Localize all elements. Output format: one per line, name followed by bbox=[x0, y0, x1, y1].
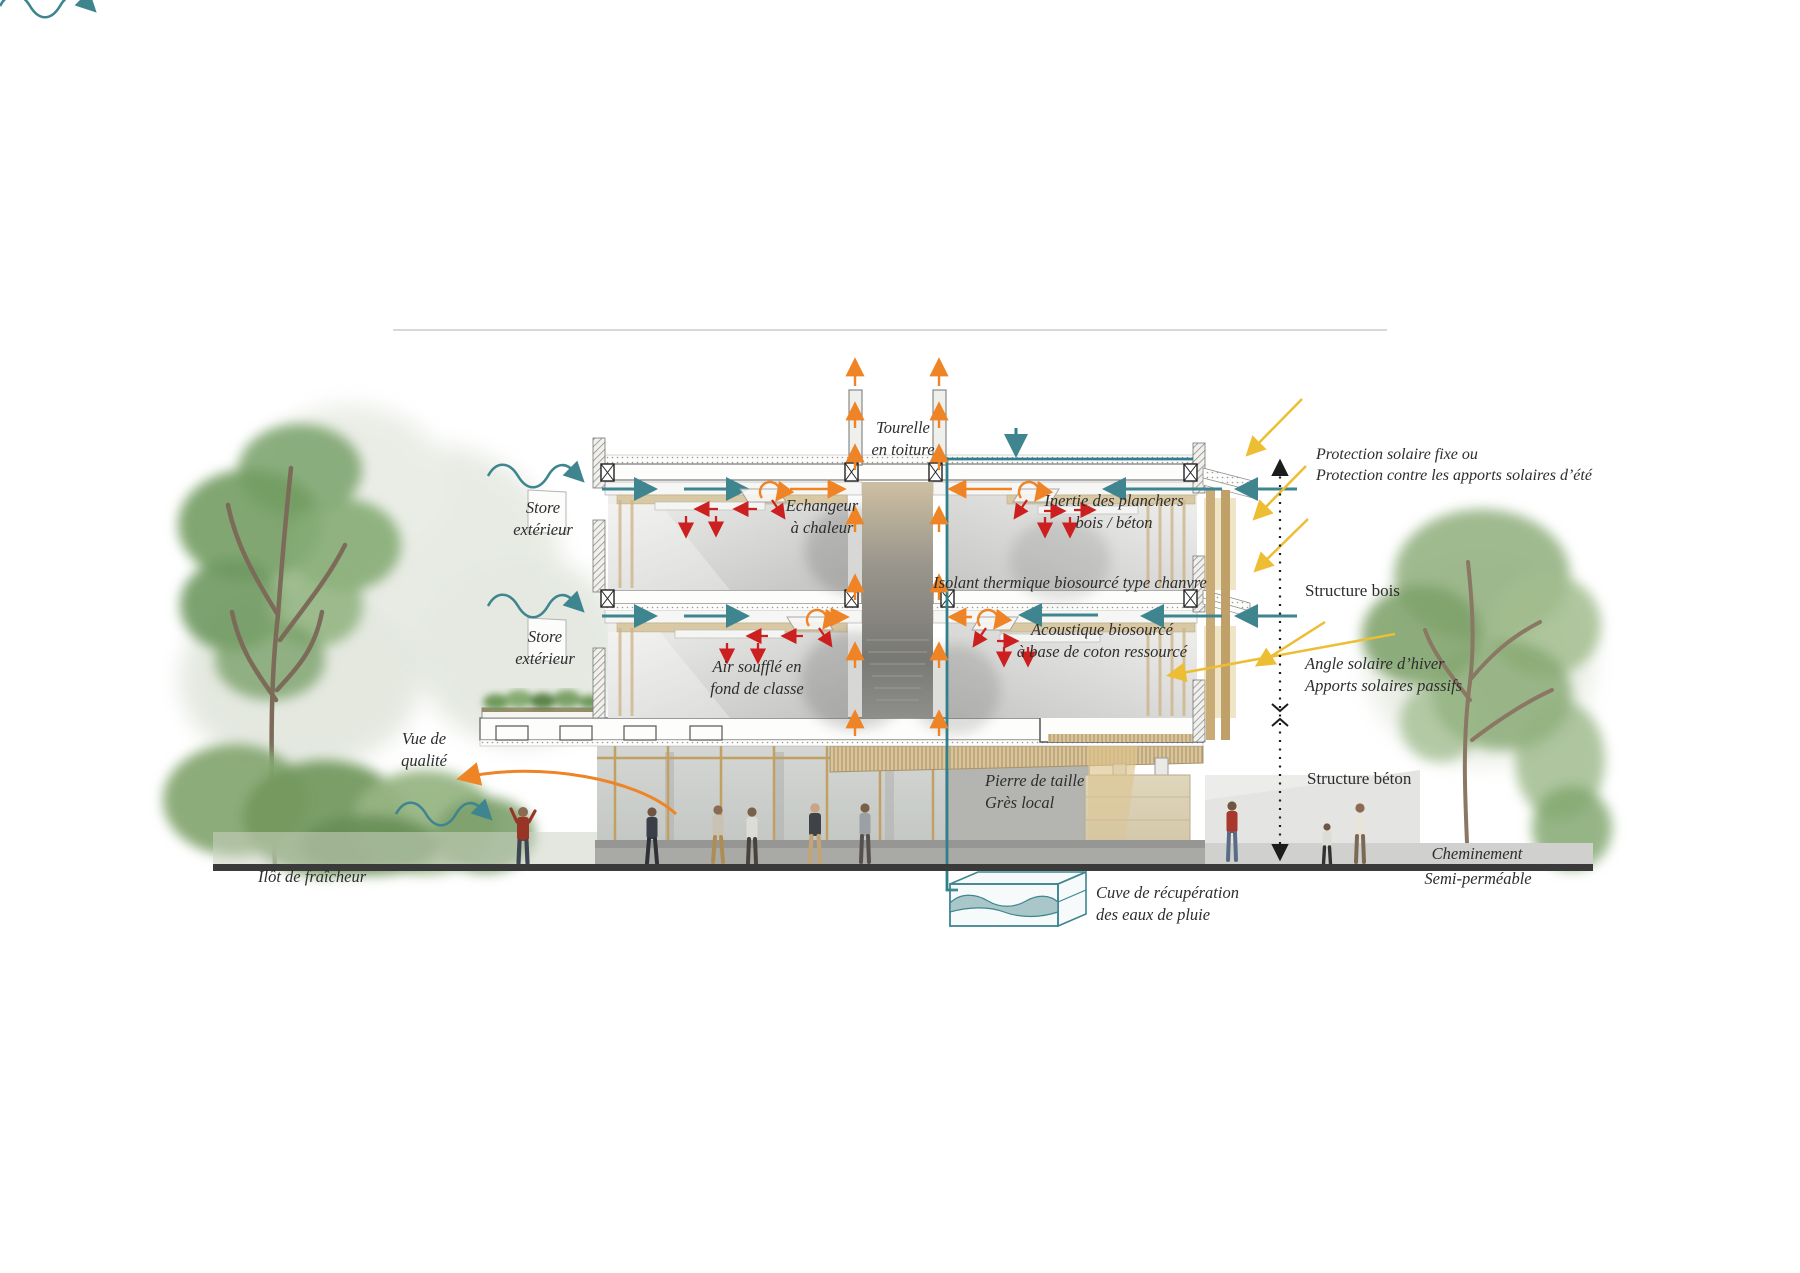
label-isolant: Isolant thermique biosourcé type chanvre bbox=[933, 572, 1207, 594]
label-store-upper: Store extérieur bbox=[513, 497, 573, 541]
label-echangeur: Echangeur à chaleur bbox=[786, 495, 858, 539]
label-pierre-taille: Pierre de taille Grès local bbox=[985, 770, 1084, 814]
stairwell bbox=[862, 482, 933, 718]
label-protection-solaire: Protection solaire fixe ou Protection co… bbox=[1316, 444, 1592, 486]
label-cheminement: Cheminement bbox=[1432, 843, 1523, 865]
label-inertie: Inertie des planchers bois / béton bbox=[1044, 490, 1183, 534]
architectural-section-diagram: Tourelle en toiture Store extérieur Stor… bbox=[0, 0, 1800, 1273]
label-vue-qualite: Vue de qualité bbox=[401, 728, 447, 772]
label-cuve: Cuve de récupération des eaux de pluie bbox=[1096, 882, 1239, 926]
label-structure-beton: Structure béton bbox=[1307, 768, 1411, 790]
water-tank bbox=[950, 872, 1086, 926]
label-store-lower: Store extérieur bbox=[515, 626, 575, 670]
label-angle-solaire: Angle solaire d’hiver Apports solaires p… bbox=[1305, 653, 1462, 697]
label-semi-permeable: Semi-perméable bbox=[1424, 868, 1531, 890]
label-tourelle: Tourelle en toiture bbox=[871, 417, 934, 461]
label-structure-bois: Structure bois bbox=[1305, 580, 1400, 602]
label-ilot-fraicheur: Ilôt de fraîcheur bbox=[258, 866, 366, 888]
section-drawing bbox=[0, 0, 1800, 1273]
label-acoustique: Acoustique biosourcé à base de coton res… bbox=[1017, 619, 1187, 663]
label-air-souffle: Air soufflé en fond de classe bbox=[710, 656, 803, 700]
ground-line bbox=[213, 864, 1593, 871]
